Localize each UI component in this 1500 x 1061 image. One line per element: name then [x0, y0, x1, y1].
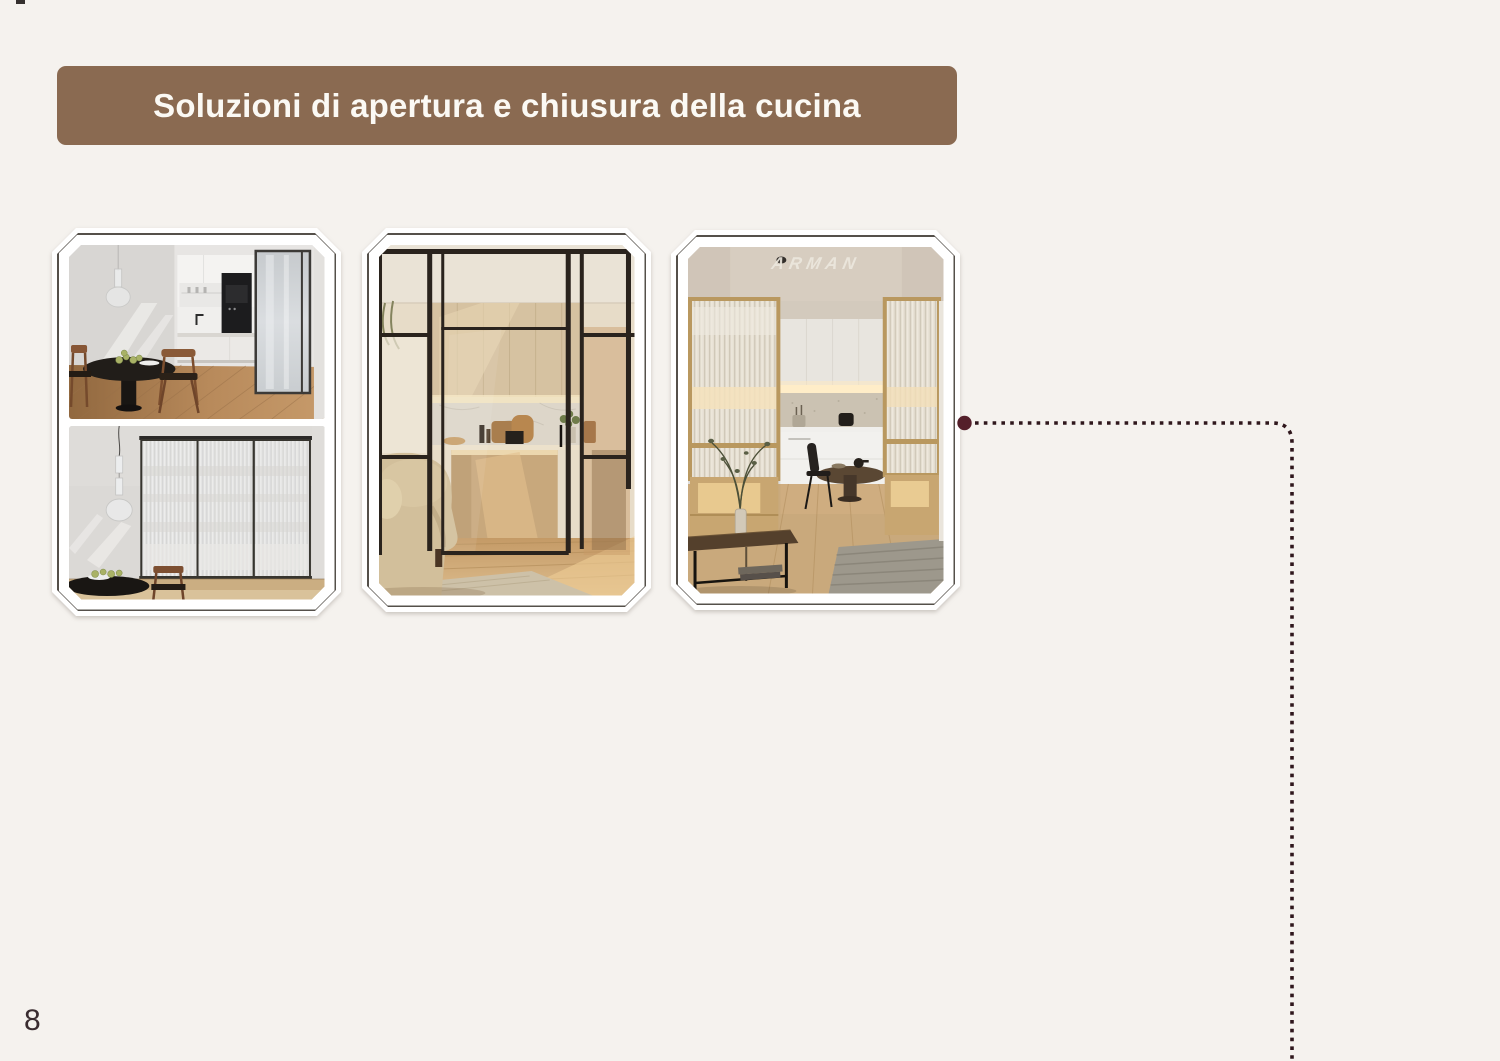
photo-kitchen-door-open [69, 245, 325, 419]
card-frame: ARMAN [671, 230, 960, 610]
card-border-line [367, 233, 646, 607]
slide-root: Soluzioni di apertura e chiusura della c… [0, 0, 1500, 1061]
card-border-line [57, 233, 336, 611]
image-card-3: ARMAN [671, 230, 960, 610]
card-matting [369, 235, 645, 606]
card-frame [52, 228, 341, 616]
photo-area: ARMAN [688, 247, 944, 594]
card-border-line: ARMAN [676, 235, 955, 605]
photo-black-frame-glass-kitchen [379, 245, 635, 596]
photo-area [69, 245, 325, 600]
black-frame-kitchen-illustration [379, 245, 635, 596]
page-title: Soluzioni di apertura e chiusura della c… [153, 87, 861, 125]
title-banner: Soluzioni di apertura e chiusura della c… [57, 66, 957, 145]
card-matting: ARMAN [678, 237, 954, 604]
image-card-1 [52, 228, 341, 616]
stray-corner-mark [16, 0, 25, 4]
card-matting [59, 235, 335, 610]
kitchen-open-door-illustration [69, 245, 325, 419]
wood-frame-kitchen-illustration [688, 247, 944, 594]
kitchen-closed-door-illustration [69, 426, 325, 600]
photo-area [379, 245, 635, 596]
card-frame [362, 228, 651, 612]
arman-watermark: ARMAN [685, 254, 945, 274]
photo-wood-frame-glass-kitchen [688, 247, 944, 594]
connector-line [975, 423, 1292, 1061]
image-card-2 [362, 228, 651, 612]
page-number: 8 [24, 1004, 41, 1038]
photo-kitchen-door-closed [69, 426, 325, 600]
